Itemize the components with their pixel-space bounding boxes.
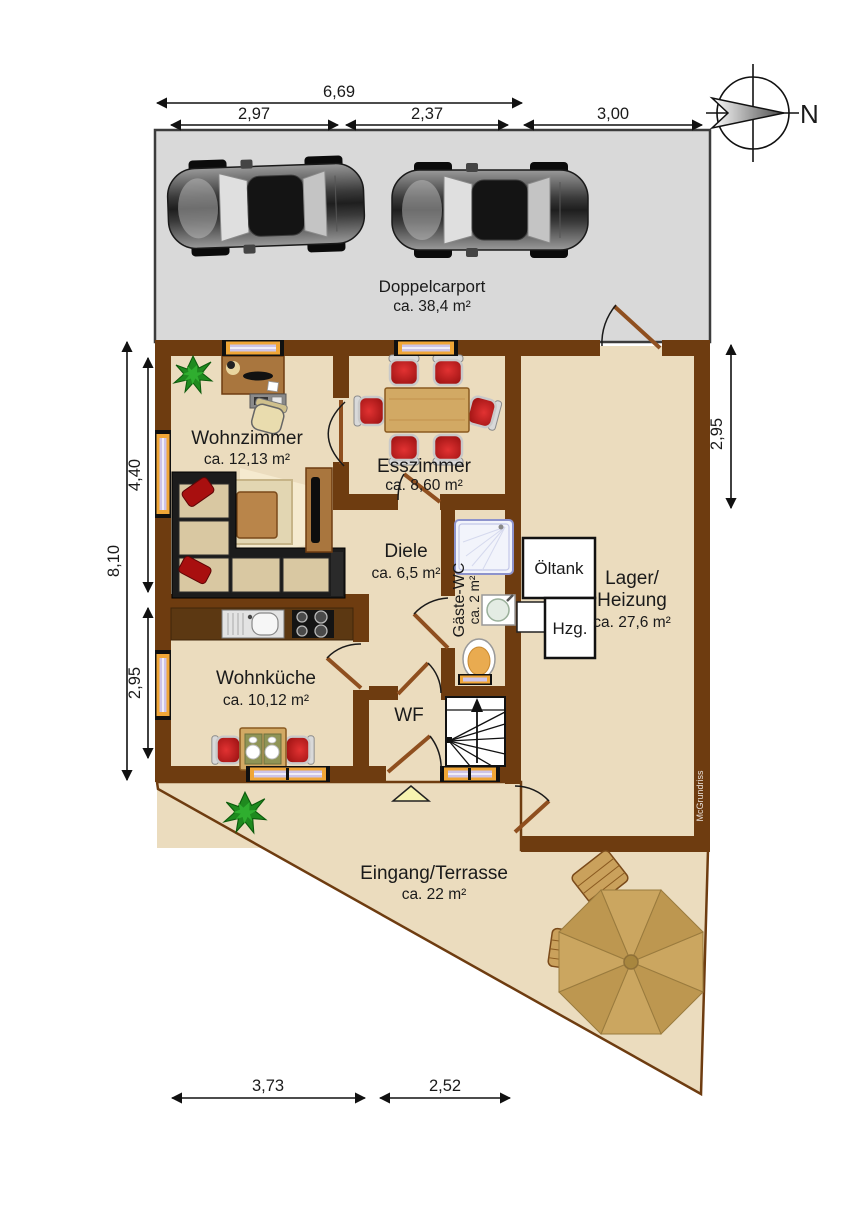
dim-bottom-seg1: 3,73 — [252, 1077, 284, 1095]
carport-name: Doppelcarport — [379, 277, 486, 296]
wall-niche — [517, 602, 545, 632]
dim-left-upper: 4,40 — [126, 459, 144, 491]
window-top-wohnzimmer — [222, 340, 284, 356]
diele-area: ca. 6,5 m² — [372, 565, 441, 582]
rug-and-coffee-table — [230, 480, 292, 544]
heater-label: Hzg. — [553, 619, 588, 638]
kitchen-counter — [171, 608, 353, 640]
diele-name: Diele — [384, 541, 427, 562]
car-2 — [392, 162, 588, 258]
wc-sink — [482, 595, 515, 625]
dim-left-total: 8,10 — [105, 545, 123, 577]
lager-area: ca. 27,6 m² — [593, 614, 671, 631]
wohnkueche-name: Wohnküche — [216, 668, 316, 689]
shower-drain — [499, 525, 504, 530]
window-bottom-wohnkueche — [246, 766, 330, 782]
car-1 — [166, 155, 365, 258]
watermark: McGrundriss — [695, 770, 705, 822]
wc-radiator — [458, 674, 492, 685]
kitchen-sink — [222, 610, 284, 638]
dim-bottom-seg2: 2,52 — [429, 1077, 461, 1095]
esszimmer-name: Esszimmer — [377, 456, 472, 477]
tv-sideboard — [306, 468, 332, 552]
eingang-area: ca. 22 m² — [402, 886, 467, 903]
oil-tank-label: Öltank — [534, 559, 584, 578]
parasol — [559, 890, 703, 1034]
gaeste-wc-area: ca. 2 m² — [467, 575, 482, 624]
oil-tank: Öltank — [523, 538, 595, 598]
heater-unit: Hzg. — [545, 598, 595, 658]
wohnkueche-area: ca. 10,12 m² — [223, 692, 309, 709]
wohnzimmer-name: Wohnzimmer — [191, 428, 303, 449]
floor-plan-page: Doppelcarport ca. 38,4 m² McGrundriss — [0, 0, 864, 1216]
compass-rose: N — [706, 64, 819, 162]
window-left-wohnkueche — [155, 650, 171, 720]
dim-left-lower: 2,95 — [126, 667, 144, 699]
dim-top-seg2: 2,37 — [411, 105, 443, 123]
window-left-wohnzimmer — [155, 430, 171, 518]
dim-top-seg3: 3,00 — [597, 105, 629, 123]
window-top-esszimmer — [394, 340, 458, 356]
wohnzimmer-area: ca. 12,13 m² — [204, 451, 290, 468]
esszimmer-area: ca. 8,60 m² — [385, 477, 463, 494]
staircase — [446, 697, 505, 766]
gaeste-wc-name: Gäste-WC — [451, 563, 468, 638]
dim-right-upper: 2,95 — [708, 418, 726, 450]
monitor-icon — [243, 372, 273, 381]
carport-area-label: ca. 38,4 m² — [393, 298, 471, 315]
tv-icon — [311, 477, 320, 543]
wf-name: WF — [394, 705, 424, 726]
lager-name-2: Heizung — [597, 590, 667, 611]
dim-top-total: 6,69 — [323, 83, 355, 101]
floor-plan-drawing: Doppelcarport ca. 38,4 m² McGrundriss — [0, 0, 864, 1216]
carport-area: Doppelcarport ca. 38,4 m² — [155, 130, 710, 342]
lager-name-1: Lager/ — [605, 568, 660, 589]
eingang-name: Eingang/Terrasse — [360, 863, 508, 884]
stove — [292, 610, 334, 638]
toilet — [463, 639, 495, 679]
window-bottom-stairs — [440, 766, 500, 782]
dim-top-seg1: 2,97 — [238, 105, 270, 123]
north-label: N — [800, 99, 819, 129]
dining-table — [385, 388, 469, 432]
